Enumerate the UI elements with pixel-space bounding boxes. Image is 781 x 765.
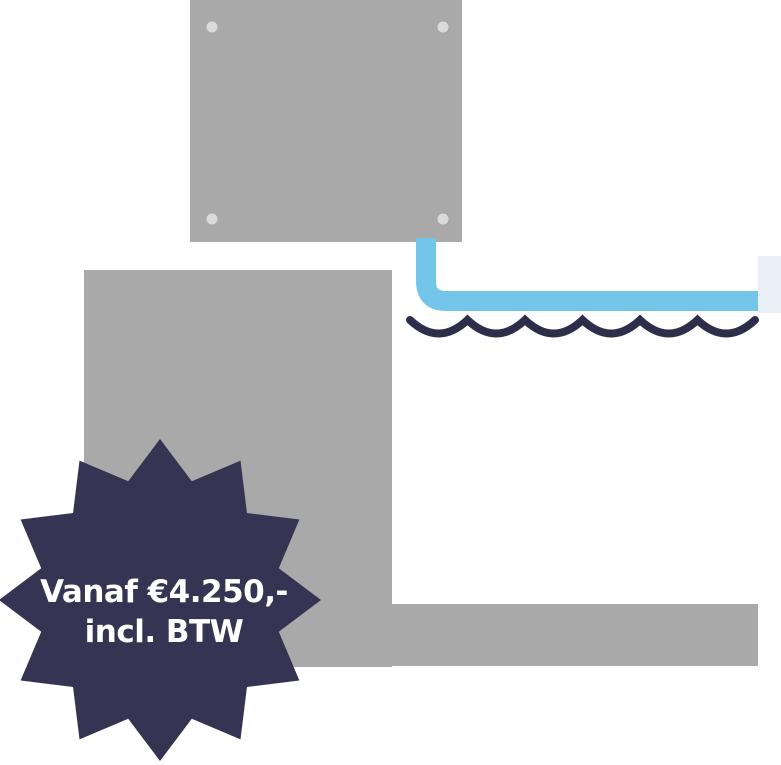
illustration-canvas: Vanaf €4.250,- incl. BTW [0,0,781,765]
price-badge-vat: incl. BTW [24,612,304,652]
panel-screw-bottom-right-icon [438,214,449,225]
price-badge: Vanaf €4.250,- incl. BTW [24,572,304,652]
quay-base [392,604,758,666]
pipe-outlet [758,256,781,313]
panel-screw-top-left-icon [207,22,218,33]
water-surface-waves-icon [410,320,755,334]
price-badge-price: Vanaf €4.250,- [24,572,304,612]
outdoor-unit-panel [190,0,462,242]
panel-screw-top-right-icon [438,22,449,33]
panel-screw-bottom-left-icon [207,214,218,225]
water-pipe [426,238,758,301]
